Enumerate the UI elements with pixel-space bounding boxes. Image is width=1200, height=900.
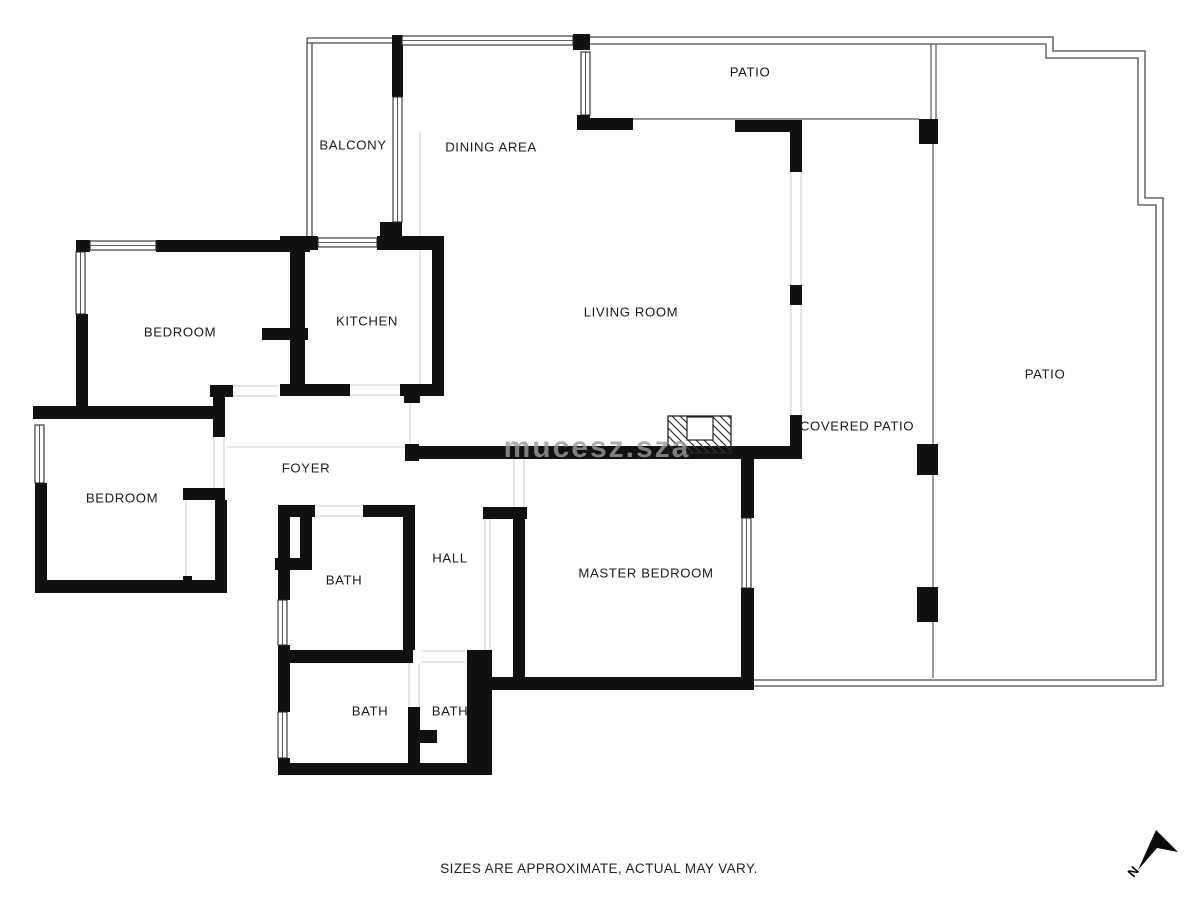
wall (280, 236, 318, 250)
patio-outline (582, 44, 1156, 680)
north-label: N (1124, 863, 1142, 880)
patio-outline (582, 37, 1163, 686)
room-label-bath: BATH (352, 704, 389, 719)
wall (300, 517, 312, 559)
wall (275, 558, 312, 570)
wall (363, 505, 410, 517)
wall (790, 120, 802, 172)
wall (741, 588, 754, 690)
wall (392, 35, 403, 97)
wall (76, 314, 88, 412)
wall (573, 34, 590, 50)
room-label-master-bedroom: MASTER BEDROOM (578, 566, 713, 581)
room-label-living-room: LIVING ROOM (584, 305, 679, 320)
wall (919, 119, 938, 144)
room-label-patio: PATIO (730, 65, 771, 80)
room-label-bedroom: BEDROOM (86, 491, 158, 506)
wall (488, 677, 753, 690)
room-label-bath: BATH (326, 573, 363, 588)
wall (278, 650, 413, 663)
wall (404, 396, 420, 403)
wall (467, 650, 492, 775)
wall (403, 505, 415, 650)
room-label-dining-area: DINING AREA (445, 140, 537, 155)
wall (290, 248, 305, 328)
room-label-hall: HALL (432, 551, 467, 566)
wall (278, 505, 315, 517)
footer-disclaimer: SIZES ARE APPROXIMATE, ACTUAL MAY VARY. (440, 861, 757, 876)
wall (262, 328, 308, 340)
wall (35, 483, 47, 593)
wall (468, 650, 490, 663)
wall (280, 384, 350, 396)
wall (917, 444, 938, 475)
wall (35, 580, 227, 593)
wall (278, 763, 492, 775)
wall (278, 570, 290, 600)
room-label-bedroom: BEDROOM (144, 325, 216, 340)
wall (213, 386, 225, 437)
floorplan-canvas: PATIOBALCONYDINING AREABEDROOMKITCHENLIV… (0, 0, 1200, 900)
north-arrow-icon (1138, 830, 1178, 870)
room-label-patio: PATIO (1025, 367, 1066, 382)
wall (278, 663, 290, 712)
watermark: mucesz.sza (504, 431, 691, 464)
wall (183, 576, 192, 588)
north-indicator: N (1124, 830, 1178, 880)
room-label-bath: BATH (432, 704, 469, 719)
room-label-balcony: BALCONY (319, 138, 386, 153)
room-label-foyer: FOYER (282, 461, 330, 476)
wall (183, 488, 225, 500)
wall (917, 587, 938, 622)
wall (790, 285, 802, 305)
wall (33, 406, 223, 419)
wall (400, 384, 444, 396)
wall (290, 340, 305, 388)
wall (215, 500, 227, 592)
fireplace-inner-box (687, 417, 713, 440)
room-label-kitchen: KITCHEN (336, 314, 398, 329)
wall (513, 512, 525, 690)
wall (590, 118, 633, 130)
wall (741, 448, 754, 518)
wall (408, 730, 437, 743)
room-label-covered-patio: COVERED PATIO (800, 419, 914, 434)
wall (432, 236, 444, 396)
wall (76, 240, 90, 252)
floorplan-page: PATIOBALCONYDINING AREABEDROOMKITCHENLIV… (0, 0, 1200, 900)
wall (577, 115, 590, 130)
